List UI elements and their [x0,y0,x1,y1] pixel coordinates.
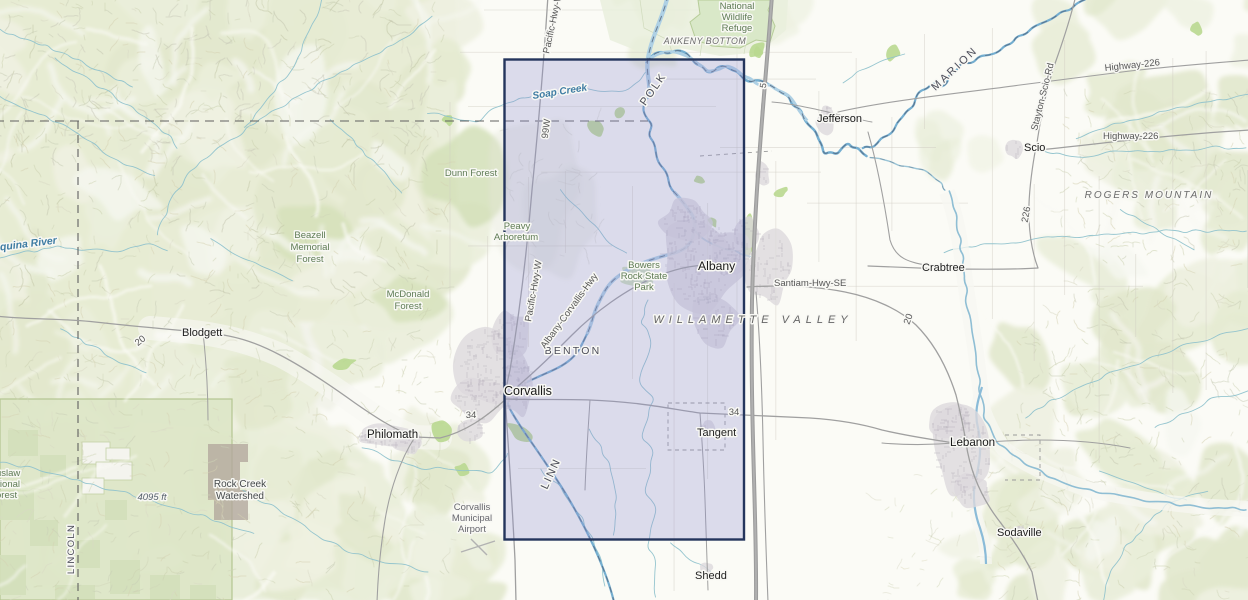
svg-text:Forest: Forest [395,301,422,312]
svg-text:WILLAMETTE VALLEY: WILLAMETTE VALLEY [653,314,852,326]
svg-text:Beazell: Beazell [294,230,325,241]
svg-text:Corvallis: Corvallis [454,502,491,513]
svg-text:Dunn Forest: Dunn Forest [445,168,498,179]
svg-text:Blodgett: Blodgett [182,327,222,339]
svg-text:4095 ft: 4095 ft [137,492,166,503]
svg-text:LINCOLN: LINCOLN [66,524,77,574]
svg-text:34: 34 [729,407,740,418]
svg-text:BENTON: BENTON [545,345,602,357]
svg-text:Memorial: Memorial [290,242,329,253]
svg-text:Santiam-Hwy-SE: Santiam-Hwy-SE [774,278,846,289]
svg-text:ational: ational [0,479,20,490]
svg-text:Philomath: Philomath [367,429,418,441]
svg-text:orest: orest [0,490,17,501]
svg-text:ROGERS MOUNTAIN: ROGERS MOUNTAIN [1085,190,1214,201]
svg-text:Airport: Airport [458,524,486,535]
svg-text:ANKENY BOTTOM: ANKENY BOTTOM [663,36,747,46]
svg-text:McDonald: McDonald [387,289,430,300]
svg-text:Refuge: Refuge [722,23,753,34]
svg-text:Albany: Albany [698,259,736,273]
svg-text:Municipal: Municipal [452,513,492,524]
svg-text:Scio: Scio [1024,142,1045,154]
svg-text:Sodaville: Sodaville [997,527,1042,539]
svg-text:Bowers: Bowers [628,260,660,271]
svg-text:Watershed: Watershed [216,491,264,502]
svg-text:Tangent: Tangent [697,427,736,439]
svg-text:Jefferson: Jefferson [817,113,862,125]
svg-text:Shedd: Shedd [695,570,727,582]
svg-text:Highway-226: Highway-226 [1103,131,1158,142]
svg-text:Peavy: Peavy [504,221,531,232]
svg-text:Park: Park [634,282,654,293]
svg-text:Rock State: Rock State [621,271,667,282]
svg-text:uslaw: uslaw [0,468,20,479]
svg-text:Rock Creek: Rock Creek [214,479,267,490]
svg-text:Crabtree: Crabtree [922,262,965,274]
svg-text:34: 34 [466,410,477,421]
svg-text:Forest: Forest [297,254,324,265]
svg-text:Lebanon: Lebanon [950,436,995,449]
svg-text:National: National [720,1,755,12]
svg-text:Corvallis: Corvallis [504,384,552,398]
svg-text:Wildlife: Wildlife [722,12,753,23]
svg-text:Arboretum: Arboretum [494,232,538,243]
